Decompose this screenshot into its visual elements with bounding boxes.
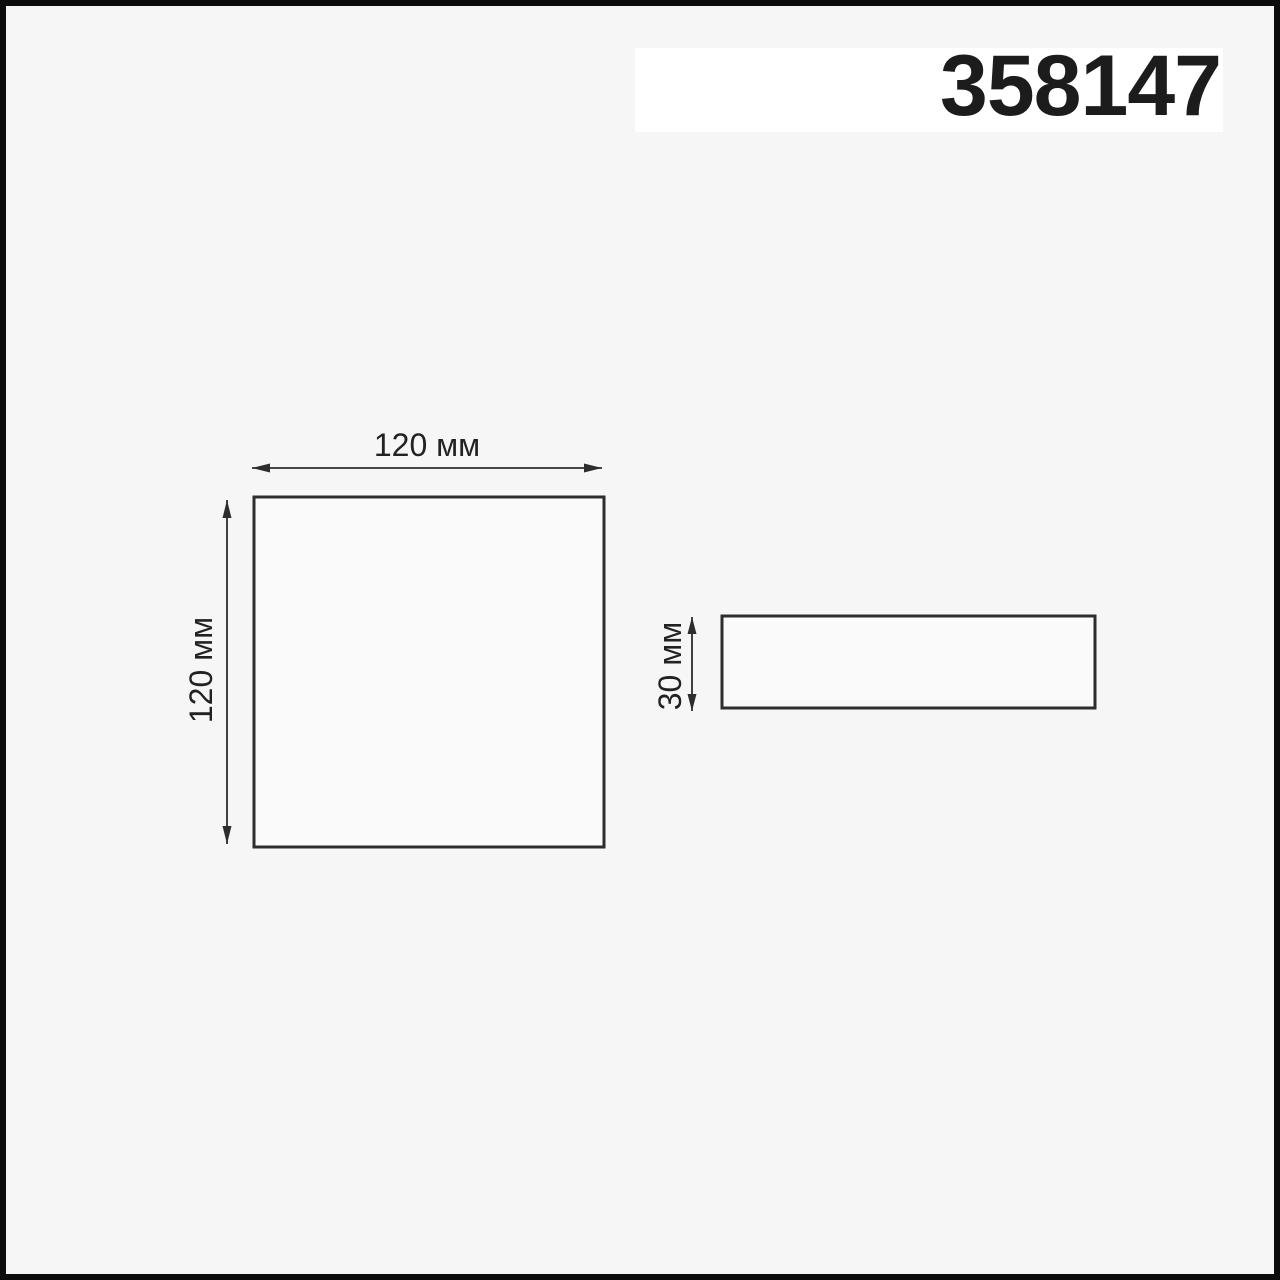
spec-sheet-canvas: 120 мм 120 мм 30 мм 358147 bbox=[0, 0, 1280, 1280]
arrow-left-icon bbox=[252, 464, 270, 473]
arrow-right-icon bbox=[584, 464, 602, 473]
arrow-down-icon bbox=[688, 694, 697, 711]
front-height-dimension: 120 мм bbox=[183, 500, 232, 844]
side-height-dimension: 30 мм bbox=[652, 617, 697, 711]
front-height-dimension-label: 120 мм bbox=[183, 617, 219, 723]
side-view-outline bbox=[722, 616, 1095, 708]
product-code-banner: 358147 bbox=[635, 48, 1223, 132]
front-view-outline bbox=[254, 497, 604, 847]
front-width-dimension: 120 мм bbox=[252, 427, 602, 473]
side-height-dimension-label: 30 мм bbox=[652, 622, 688, 710]
front-width-dimension-label: 120 мм bbox=[374, 427, 480, 463]
arrow-down-icon bbox=[223, 826, 232, 844]
arrow-up-icon bbox=[688, 617, 697, 634]
dimension-drawing: 120 мм 120 мм 30 мм bbox=[0, 0, 1280, 1280]
product-code: 358147 bbox=[940, 43, 1221, 129]
arrow-up-icon bbox=[223, 500, 232, 518]
